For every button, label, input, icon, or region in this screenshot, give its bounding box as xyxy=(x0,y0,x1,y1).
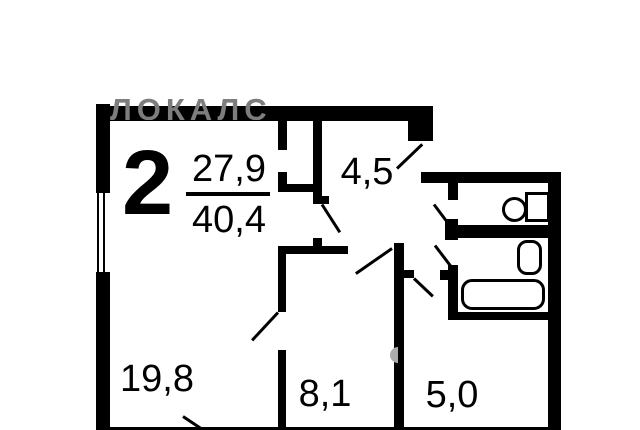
wall-wc-bath-divider xyxy=(448,225,561,238)
wall-upper-right xyxy=(421,172,561,183)
wall-wc-left-stub xyxy=(448,182,458,200)
bathtub-icon xyxy=(461,279,545,310)
door-swing-kitchen xyxy=(413,277,434,297)
toilet-tank-icon xyxy=(525,192,550,222)
door-swing-room81-left xyxy=(251,311,279,341)
window-line xyxy=(97,193,99,272)
door-swing-wc xyxy=(433,204,450,226)
wall-closet-stub-bottom xyxy=(278,172,287,192)
wall-room81-left-upper xyxy=(278,246,286,312)
wall-top-right-corner xyxy=(408,106,433,141)
wall-room81-right xyxy=(394,243,404,430)
rooms-count-label: 2 xyxy=(122,137,173,229)
room-bedroom-label: 8,1 xyxy=(295,375,355,413)
watermark: ЛОКАЛС xyxy=(110,97,410,120)
sink-icon xyxy=(517,240,542,275)
wall-mid-notch xyxy=(313,238,322,246)
wall-hall-left xyxy=(313,121,322,196)
room-kitchen-label: 5,0 xyxy=(420,376,484,414)
watermark-text: ЛОКАЛС xyxy=(110,97,272,120)
wall-room81-right-stub xyxy=(404,270,414,278)
living-area-label: 27,9 xyxy=(188,150,270,188)
wall-mid-horizontal xyxy=(278,246,348,254)
wall-closet-stub-top xyxy=(278,121,287,150)
door-swing-room81-top xyxy=(355,247,393,275)
wall-hall-left-foot xyxy=(313,196,329,204)
wall-bath-bottom xyxy=(448,312,561,320)
watermark-fragment xyxy=(390,347,398,363)
room-hall-label: 4,5 xyxy=(329,153,405,191)
wall-bath-left-notch xyxy=(440,270,448,280)
total-area-label: 40,4 xyxy=(188,201,270,239)
floor-plan: 2 27,9 40,4 4,5 19,8 8,1 5,0 ЛОКАЛС xyxy=(0,0,640,430)
toilet-icon xyxy=(502,197,527,222)
door-swing-bath xyxy=(434,245,452,268)
area-fraction-bar xyxy=(186,192,270,196)
window-line xyxy=(103,193,105,272)
wall-room81-left-lower xyxy=(278,350,286,430)
room-living-label: 19,8 xyxy=(105,360,209,398)
door-swing-living xyxy=(321,204,341,233)
